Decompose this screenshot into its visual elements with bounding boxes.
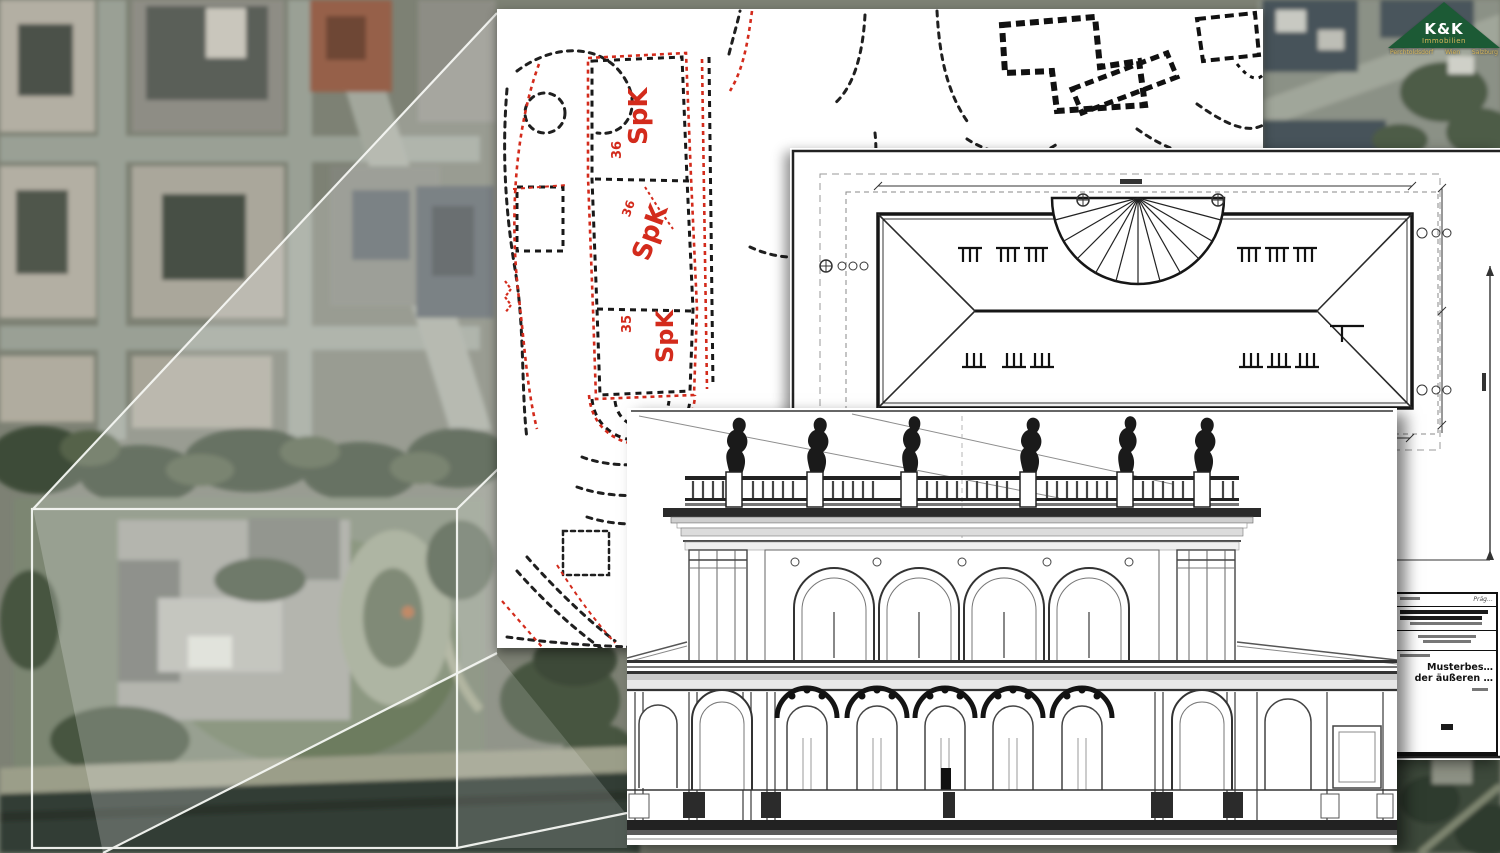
room-number-2: 36 [619,198,638,218]
title-block-architect [1397,631,1496,651]
tagline-city-2: Wien [1445,49,1460,56]
title-block-header: Präg… [1397,594,1496,607]
title-block: Präg… Musterbes… der äußeren … [1395,592,1498,756]
title-block-plan-no: Präg… [1438,596,1493,603]
title-block-title: Musterbes… der äußeren … [1397,661,1496,717]
room-number-3: 35 [620,315,635,333]
tagline-city-3: Salzburg [1472,49,1498,56]
title-line-1: Musterbes… [1400,662,1493,673]
title-block-scale [1397,717,1496,739]
logo-brand: K&K [1388,20,1500,38]
ground-floor [627,687,1397,821]
facade-elevation-drawing [627,408,1397,845]
room-label-spk-1: SpK [624,87,654,145]
company-logo: K&K Immobilien Perchtoldsdorf Wien Salzb… [1388,2,1500,60]
building-footprints [1002,13,1263,113]
composite-presentation: SpK 36 SpK 36 SpK 35 [0,0,1500,853]
cadastral-building-black [517,57,713,441]
title-block-firm [1397,607,1496,631]
logo-subtitle: Immobilien [1388,37,1500,45]
room-number-1: 36 [610,141,625,159]
facade-base [627,820,1397,839]
title-line-2: der äußeren … [1400,673,1493,684]
room-label-spk-3: SpK [651,309,679,363]
main-cornice [663,508,1261,550]
title-block-date [1397,651,1496,661]
facade-elevation-sheet [627,408,1397,845]
tagline-city-1: Perchtoldsdorf [1390,49,1433,56]
logo-tagline: Perchtoldsdorf Wien Salzburg [1390,49,1498,56]
upper-floor [689,550,1235,662]
